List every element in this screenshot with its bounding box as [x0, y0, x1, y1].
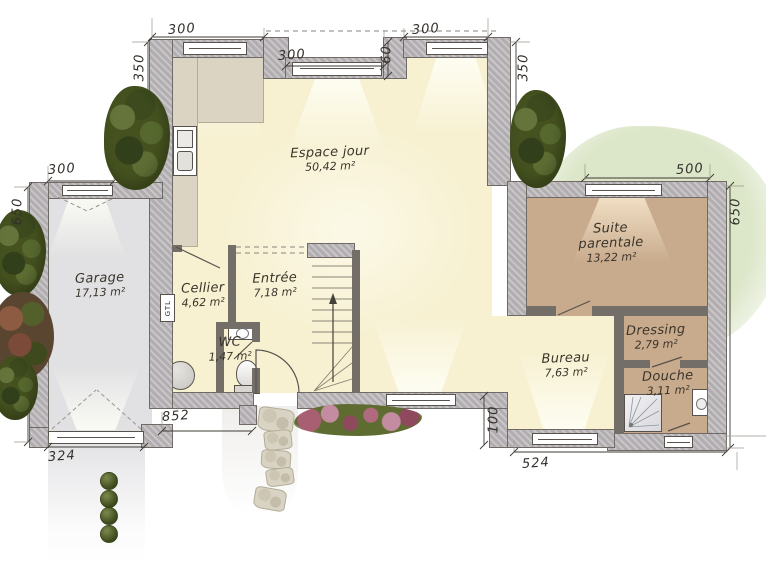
partition-dressing-douche-right: [680, 360, 708, 368]
room-label-douche: Douche 3,11 m²: [632, 369, 705, 399]
partition-wc-right-lower: [252, 368, 260, 393]
room-label-cellier: Cellier 4,62 m²: [168, 281, 239, 311]
dim-top-window-mid: 300: [278, 47, 307, 64]
dim-bottom-wall: 852: [162, 408, 191, 425]
dim-garage-door: 324: [48, 448, 77, 465]
room-area: 1,47 m²: [200, 350, 260, 365]
floor-suite-door-gap: [556, 306, 592, 316]
sink-basin: [177, 151, 193, 171]
flower-bed: [294, 404, 422, 436]
dim-right-wall-upper: 350: [517, 51, 532, 85]
shower-tray: [624, 394, 662, 432]
room-label-dressing: Dressing 2,79 m²: [618, 323, 695, 353]
window-top-right: [426, 42, 488, 55]
bathroom-sink-bowl: [696, 398, 707, 410]
dim-top-window-right: 300: [412, 21, 441, 38]
bush-row-small: [100, 525, 118, 543]
dim-top-recess-depth: 60: [380, 38, 395, 72]
stepping-stone: [263, 429, 293, 452]
wall-garage-bottom-right: [142, 425, 172, 447]
room-area: 3,11 m²: [632, 384, 704, 399]
bush-row-small: [100, 507, 118, 525]
room-name: Suite parentale: [565, 220, 656, 253]
dim-step-depth: 100: [487, 403, 502, 437]
dim-suite-right-wall: 650: [729, 195, 744, 229]
kitchen-sink: [173, 126, 197, 176]
wall-garage-corner: [30, 428, 48, 447]
bush-row-small: [100, 472, 118, 490]
partition-suite-bureau-right: [592, 306, 708, 316]
window-espace-bottom: [386, 394, 456, 406]
dim-bureau-wall: 524: [522, 455, 551, 472]
window-bureau: [532, 433, 598, 445]
wall-stair-stub: [308, 244, 354, 257]
wall-suite-right: [708, 182, 726, 450]
dim-garage-window: 300: [48, 161, 77, 178]
room-label-espace-jour: Espace jour 50,42 m²: [270, 144, 391, 176]
dim-suite-window: 500: [676, 161, 705, 178]
window-garage: [62, 185, 113, 196]
dim-left-wall-upper: 350: [133, 51, 148, 85]
room-label-entree: Entrée 7,18 m²: [240, 271, 311, 301]
partition-dressing-douche-left: [624, 360, 650, 368]
room-label-suite-parentale: Suite parentale 13,22 m²: [565, 220, 656, 266]
room-label-wc: WC 1,47 m²: [200, 335, 261, 365]
window-suite: [585, 184, 662, 196]
room-label-bureau: Bureau 7,63 m²: [528, 351, 605, 381]
dim-top-window-left: 300: [168, 21, 197, 38]
partition-stair-wall: [352, 250, 360, 393]
wall-espace-suite-divider: [508, 182, 526, 315]
bush-row-small: [100, 490, 118, 508]
porch-stub: [240, 406, 256, 424]
floor-plan: GTL: [0, 0, 766, 564]
window-top-mid: [292, 62, 382, 76]
window-douche: [664, 436, 693, 448]
room-area: 4,62 m²: [168, 296, 238, 311]
room-area: 2,79 m²: [618, 338, 694, 353]
partition-cellier-top-stub: [172, 245, 182, 252]
room-area: 7,63 m²: [528, 366, 604, 381]
partition-suite-bureau-left: [526, 306, 556, 316]
room-area: 7,18 m²: [240, 286, 310, 301]
window-top-left: [183, 42, 247, 55]
room-label-garage: Garage 17,13 m²: [60, 271, 141, 301]
wall-right-upper: [488, 38, 510, 185]
sink-drainer: [177, 130, 193, 148]
dim-garage-left-wall: 650: [11, 195, 26, 229]
floor-garage: [48, 197, 152, 432]
garage-door: [48, 431, 144, 444]
